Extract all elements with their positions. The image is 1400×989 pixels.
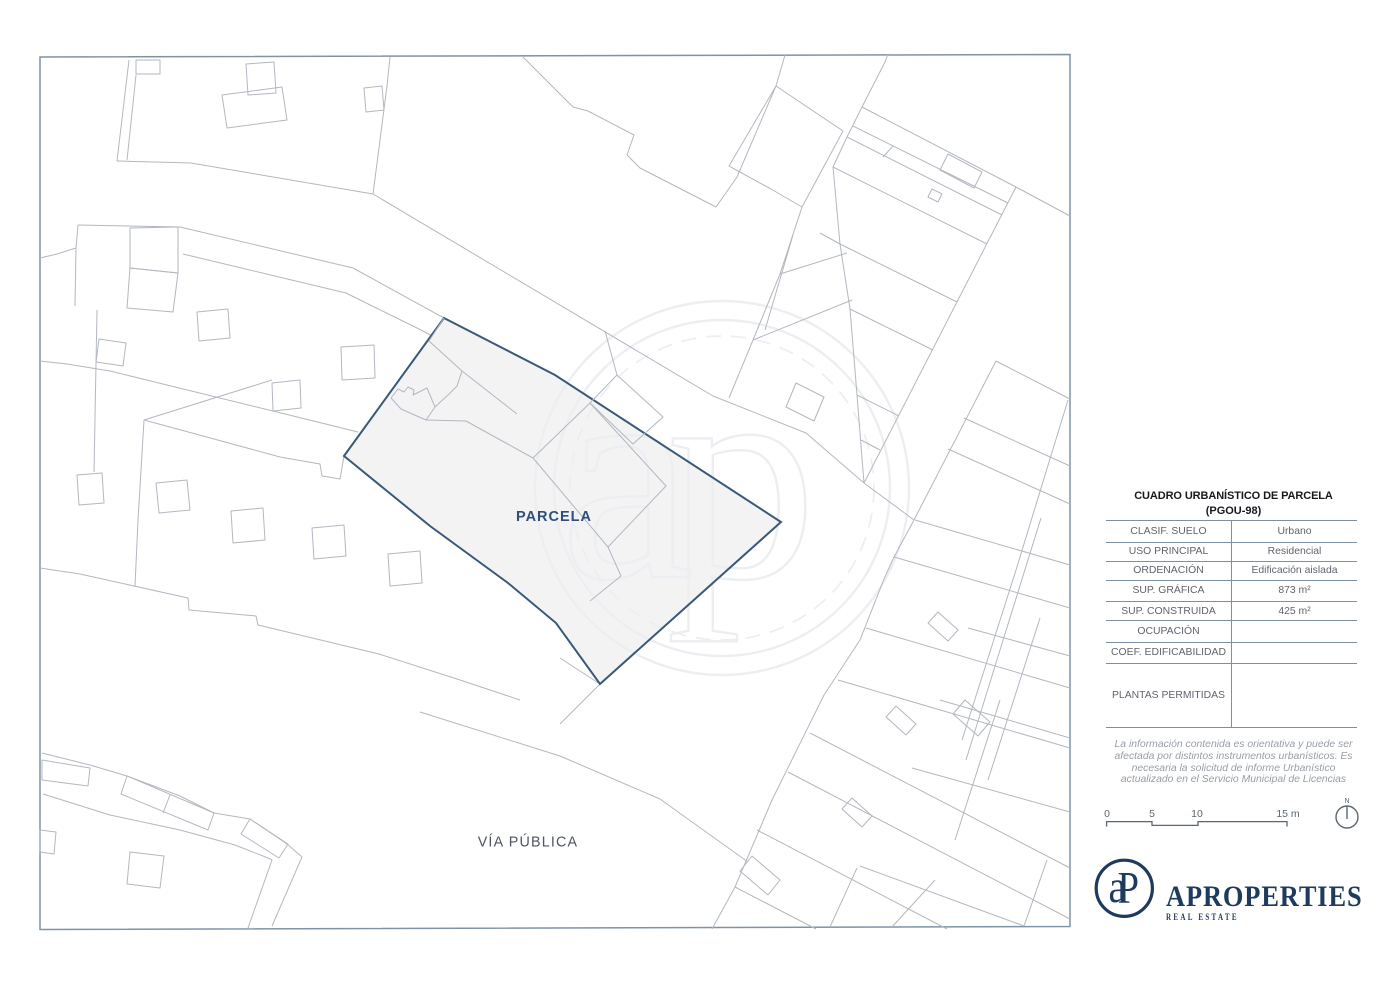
svg-text:VÍA PÚBLICA: VÍA PÚBLICA (478, 834, 579, 851)
svg-text:P: P (1118, 862, 1140, 913)
svg-text:ap: ap (560, 309, 808, 643)
svg-text:N: N (1344, 798, 1349, 805)
svg-text:10: 10 (1191, 808, 1203, 820)
svg-text:15 m: 15 m (1276, 808, 1300, 820)
svg-text:PARCELA: PARCELA (516, 509, 592, 525)
svg-text:0: 0 (1104, 808, 1110, 820)
svg-text:5: 5 (1149, 808, 1155, 820)
